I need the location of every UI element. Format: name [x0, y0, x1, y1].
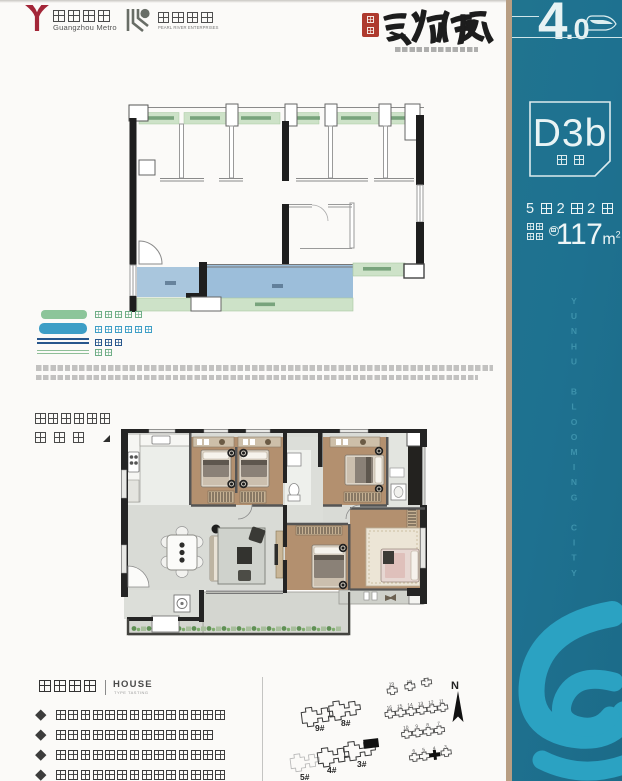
- svg-text:N: N: [451, 680, 459, 692]
- svg-text:5#: 5#: [300, 772, 310, 781]
- svg-text:9#: 9#: [315, 723, 325, 733]
- svg-text:3: 3: [444, 744, 448, 750]
- svg-text:9: 9: [415, 724, 419, 730]
- svg-text:8#: 8#: [341, 718, 351, 728]
- svg-text:16: 16: [386, 705, 392, 712]
- svg-text:13: 13: [418, 701, 424, 708]
- svg-text:17: 17: [423, 677, 429, 684]
- svg-text:10: 10: [403, 725, 409, 732]
- svg-text:4#: 4#: [327, 765, 337, 775]
- svg-text:18: 18: [406, 679, 412, 686]
- svg-text:7: 7: [437, 721, 441, 727]
- svg-text:5: 5: [422, 747, 426, 753]
- svg-text:4: 4: [432, 746, 436, 752]
- svg-text:15: 15: [397, 703, 403, 710]
- svg-text:8: 8: [426, 722, 430, 728]
- svg-text:11: 11: [439, 698, 445, 705]
- svg-text:6: 6: [412, 748, 416, 754]
- svg-text:12: 12: [428, 700, 434, 707]
- svg-text:19: 19: [388, 681, 394, 688]
- svg-text:14: 14: [407, 702, 413, 709]
- svg-text:3#: 3#: [357, 759, 367, 769]
